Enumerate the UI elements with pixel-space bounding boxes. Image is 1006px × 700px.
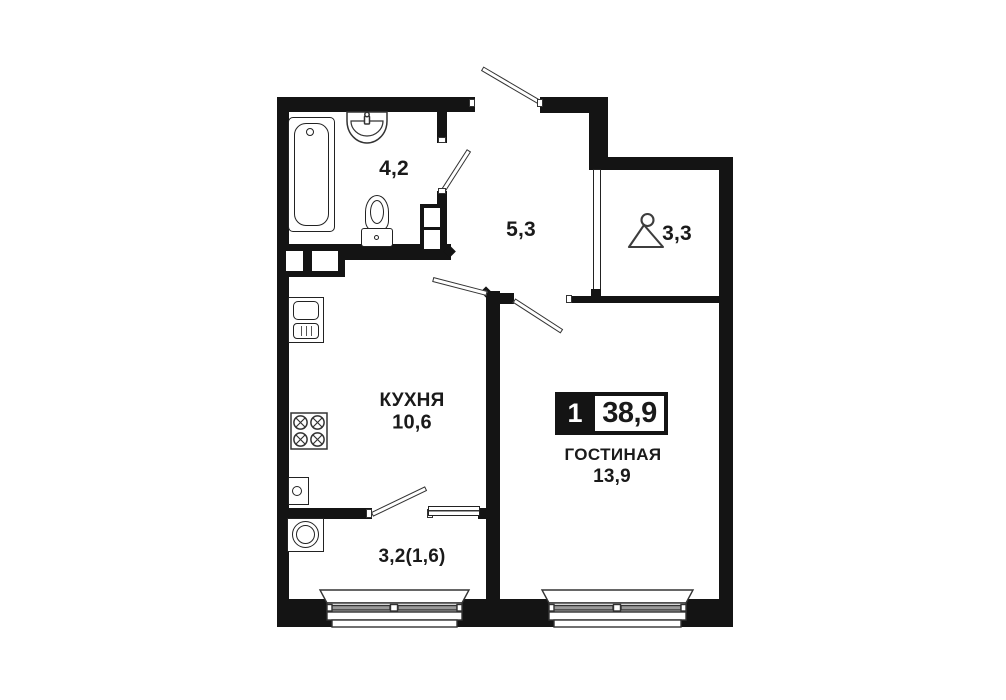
kitchen-sink-basin — [293, 301, 319, 320]
bathroom-area-label: 4,2 — [379, 157, 409, 181]
kitchen-sink-drainer — [293, 323, 319, 339]
hanger-icon — [625, 210, 667, 252]
balcony-window — [319, 589, 470, 630]
boiler-knob — [292, 486, 302, 496]
door-jamb — [566, 295, 572, 303]
wash-basin-icon — [344, 111, 390, 151]
balcony-door-leaf — [371, 486, 427, 517]
hallway-area-label: 5,3 — [506, 218, 536, 242]
bathroom-door-leaf — [440, 149, 471, 194]
duct-shaft-cell — [286, 251, 303, 271]
wall-step-vertical — [589, 109, 608, 161]
duct-shaft-cell — [424, 230, 440, 249]
door-jamb — [469, 99, 475, 107]
living-door-leaf — [513, 298, 564, 333]
wall-living-left — [486, 291, 500, 599]
apartment-badge: 1 38,9 — [555, 392, 668, 435]
door-jamb — [366, 509, 372, 518]
living-area-label: 13,9 — [593, 466, 631, 488]
wall-wardrobe-top — [589, 157, 733, 170]
toilet-bowl-inner — [370, 200, 384, 224]
kitchen-door-leaf — [432, 277, 487, 296]
door-jamb — [537, 99, 543, 107]
duct-shaft-cell — [312, 251, 338, 271]
bathtub-drain — [306, 128, 314, 136]
entry-door-leaf — [481, 66, 541, 104]
kitchen-balcony-window — [428, 506, 480, 516]
kitchen-name-label: КУХНЯ — [380, 390, 445, 412]
kitchen-area-label: 10,6 — [392, 412, 432, 435]
living-name-label: ГОСТИНАЯ — [564, 445, 661, 465]
door-jamb — [438, 137, 446, 143]
floor-plan: 4,2 5,3 3,3 КУХНЯ 10,6 ГОСТИНАЯ 13,9 3,2… — [0, 0, 1006, 700]
duct-shaft-cell — [424, 208, 440, 227]
toilet-tank-button — [374, 235, 379, 240]
wardrobe-partition-cap — [591, 289, 601, 298]
stove-icon — [290, 412, 328, 450]
wall-right — [719, 157, 733, 627]
badge-rooms-count: 1 — [555, 392, 595, 435]
balcony-area-label: 3,2(1,6) — [378, 546, 445, 568]
bathtub-inner — [294, 123, 329, 226]
washing-machine-drum-inner — [296, 525, 315, 544]
wardrobe-area-label: 3,3 — [662, 222, 692, 246]
living-window — [541, 589, 694, 630]
wardrobe-partition — [593, 169, 601, 293]
door-jamb — [438, 188, 446, 194]
badge-total-area: 38,9 — [595, 396, 664, 431]
